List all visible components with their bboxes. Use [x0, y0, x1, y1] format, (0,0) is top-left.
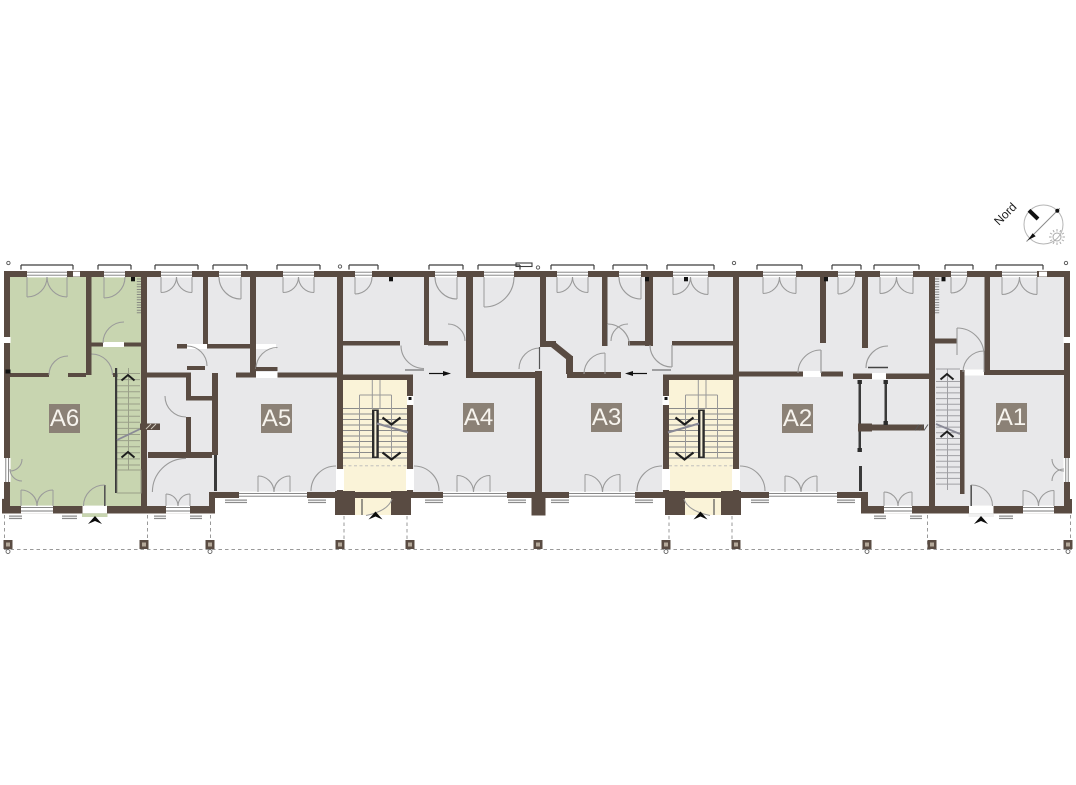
svg-text:A6: A6: [50, 405, 79, 432]
svg-text:A1: A1: [997, 404, 1026, 431]
svg-text:A3: A3: [592, 404, 621, 431]
svg-text:A5: A5: [262, 405, 291, 432]
svg-text:A4: A4: [464, 404, 493, 431]
svg-text:A2: A2: [783, 405, 812, 432]
